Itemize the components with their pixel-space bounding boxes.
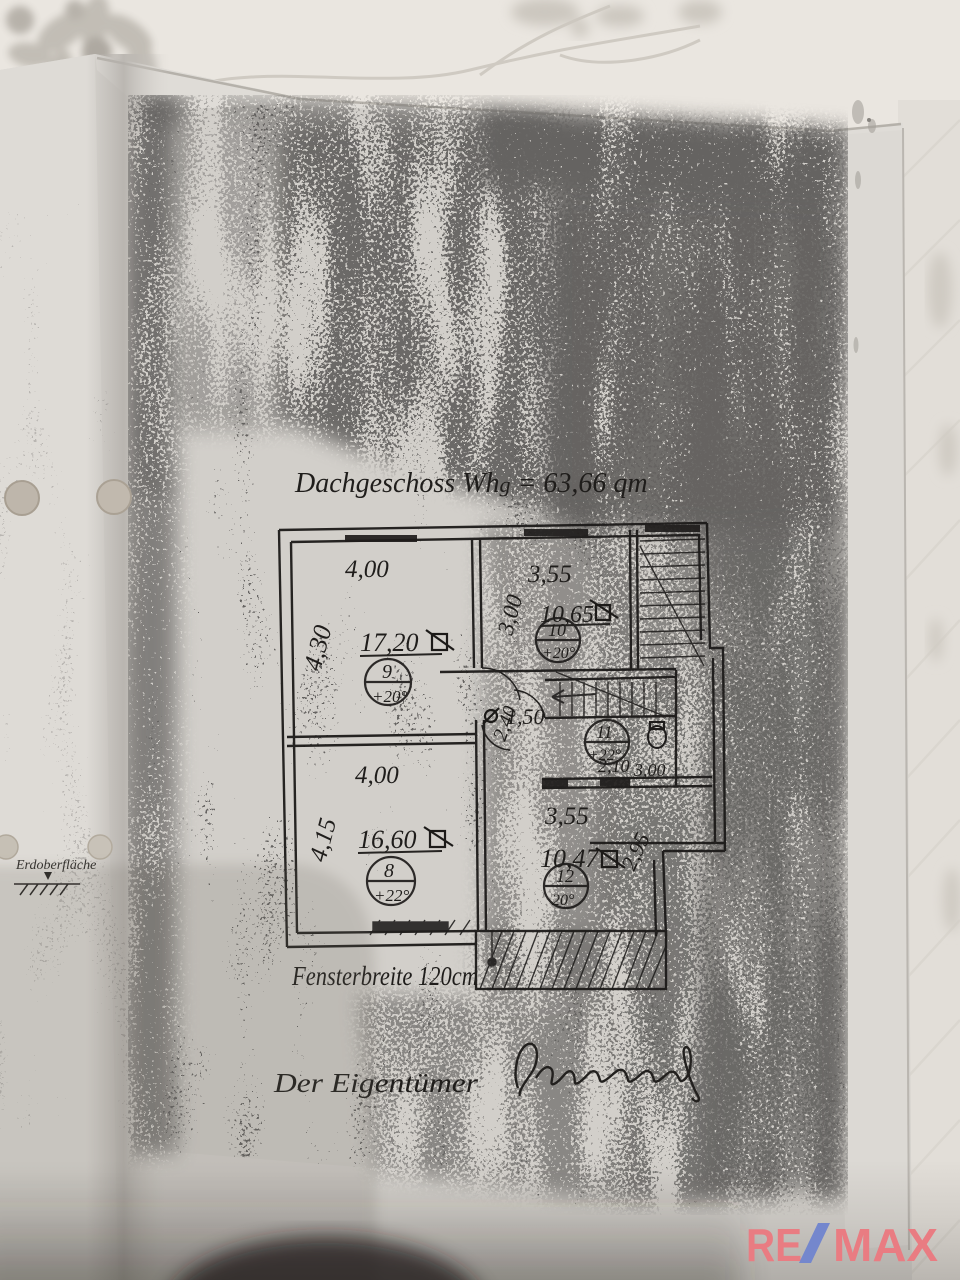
- svg-text:+20°: +20°: [372, 687, 407, 706]
- svg-text:4,00: 4,00: [345, 556, 389, 583]
- svg-text:MAX: MAX: [833, 1219, 938, 1271]
- svg-text:RE: RE: [746, 1219, 802, 1271]
- svg-text:17,20: 17,20: [360, 628, 419, 657]
- svg-text:11: 11: [596, 722, 613, 742]
- svg-text:12: 12: [556, 866, 574, 886]
- svg-text:9: 9: [382, 661, 392, 683]
- svg-text:3,55: 3,55: [527, 561, 572, 588]
- svg-text:10: 10: [548, 620, 566, 640]
- svg-text:+20°: +20°: [542, 645, 576, 662]
- svg-text:+22°: +22°: [588, 747, 622, 764]
- svg-text:3,00: 3,00: [633, 760, 666, 780]
- svg-text:Dachgeschoss Whg = 63,66 qm: Dachgeschoss Whg = 63,66 qm: [294, 468, 648, 499]
- svg-text:20°: 20°: [552, 892, 575, 909]
- svg-text:3,55: 3,55: [544, 803, 589, 830]
- svg-text:16,60: 16,60: [358, 825, 417, 854]
- svg-text:+22°: +22°: [374, 886, 409, 905]
- svg-text:8: 8: [384, 860, 394, 882]
- svg-text:4,00: 4,00: [355, 762, 399, 789]
